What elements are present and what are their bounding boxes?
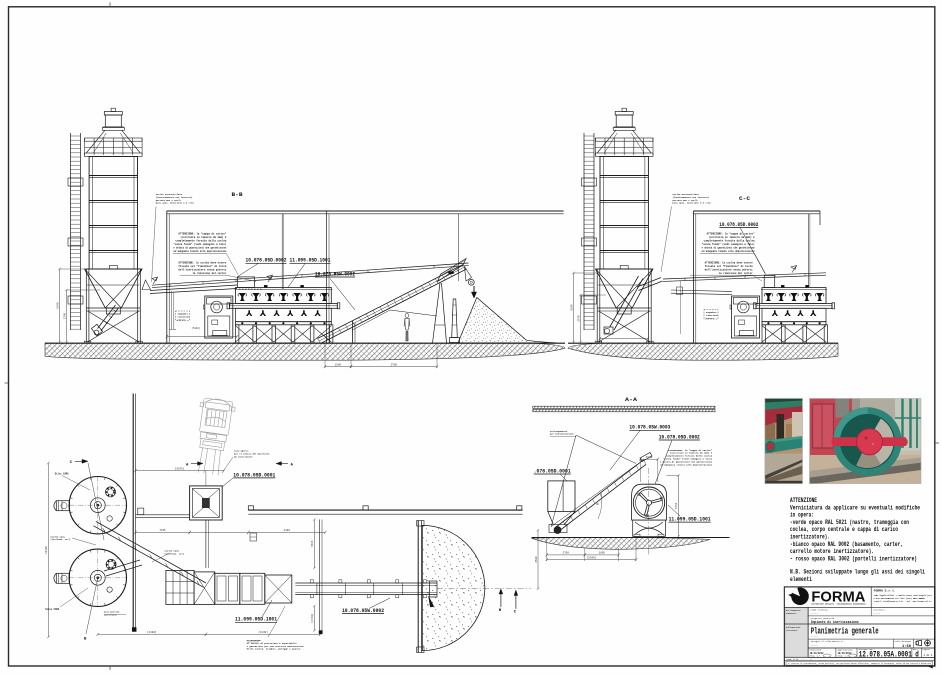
svg-text:[5340]: [5340] (587, 555, 597, 559)
svg-text:della coclea, (rights, pulegge: della coclea, (rights, pulegge e giunto. (247, 648, 302, 651)
svg-text:B-B: B-B (232, 192, 243, 198)
svg-text:1515: 1515 (311, 540, 314, 547)
svg-text:[4448]: [4448] (310, 613, 314, 623)
svg-text:ATTENZIONE: la “cappa di caric: ATTENZIONE: la “cappa di carico” (707, 233, 756, 236)
svg-text:coclea, corpo centrale e cappa: coclea, corpo centrale e cappa di carico (790, 526, 898, 533)
svg-text:5340: 5340 (56, 302, 59, 309)
svg-text:peso spec. materiale 0.8 t/m3: peso spec. materiale 0.8 t/m3 (673, 202, 712, 205)
svg-text:1 di 1: 1 di 1 (924, 653, 933, 657)
svg-text:1512: 1512 (675, 502, 678, 509)
svg-text:-----: ----- (811, 644, 819, 647)
svg-text:-----: ----- (811, 636, 819, 639)
svg-text:completamente fornita dalla co: completamente fornita dalla coclea (704, 240, 756, 243)
svg-text:5700: 5700 (391, 363, 398, 366)
svg-text:C-C: C-C (739, 196, 750, 202)
svg-text:elementi: elementi (790, 576, 812, 583)
svg-text:Verniciatura da applicare su e: Verniciatura da applicare su eventuali m… (790, 504, 920, 511)
svg-text:riservata:: riservata: (786, 629, 798, 632)
svg-text:11.099.05D.1001: 11.099.05D.1001 (290, 258, 331, 264)
svg-text:10.078.05W.0002: 10.078.05W.0002 (342, 608, 384, 614)
svg-text:-----: ----- (873, 612, 881, 615)
svg-text:un’adeguata tenuta alla depolv: un’adeguata tenuta alla depolverazione (702, 250, 756, 253)
svg-text:- rosso opaco RAL 3002 (portel: - rosso opaco RAL 3002 (portelli inertiz… (790, 555, 917, 562)
svg-text:scorrevole: scorrevole (104, 613, 118, 616)
svg-text:Silos CAM2: Silos CAM2 (45, 608, 59, 611)
svg-text:la rimozione del carter: la rimozione del carter (192, 272, 227, 275)
svg-text:N.B. Sezioni sviluppate lungo: N.B. Sezioni sviluppate lungo gli assi d… (790, 569, 925, 576)
svg-text:1500: 1500 (335, 363, 342, 366)
svg-text:2740: 2740 (577, 315, 580, 322)
svg-text:FORMA S.r.l.: FORMA S.r.l. (874, 589, 896, 593)
svg-text:Nome file: --- · ---: Nome file: --- · --- (787, 658, 813, 661)
svg-text:carrello motore inertizzatore): carrello motore inertizzatore). (790, 548, 874, 555)
svg-text:10.078.05W.0002: 10.078.05W.0002 (315, 271, 355, 277)
svg-text:.078.05D.0001: .078.05D.0001 (534, 468, 571, 474)
svg-text:Planimetria generale: Planimetria generale (811, 626, 879, 637)
svg-text:un’adeguata tenuta alla depolv: un’adeguata tenuta alla depolverazione (173, 250, 227, 253)
svg-text:1540: 1540 (646, 456, 653, 459)
svg-text:-----: ----- (811, 612, 819, 615)
svg-text:Località:: Località: (873, 608, 885, 611)
svg-text:10.078.05D.0002: 10.078.05D.0002 (719, 222, 758, 228)
svg-text:Pagina: Pagina (923, 648, 931, 651)
svg-text:-verde opaco RAL 5021 (nastro,: -verde opaco RAL 5021 (nastro, tramoggia… (790, 519, 909, 526)
svg-text:ATTENZIONE: ATTENZIONE (790, 497, 817, 504)
svg-text:carter: carter (178, 318, 187, 321)
svg-text:peso spec. materiale 0.8 t/m3: peso spec. materiale 0.8 t/m3 (156, 202, 195, 205)
svg-text:per movimentazione: per movimentazione (550, 433, 574, 436)
svg-text:5340: 5340 (570, 304, 573, 311)
svg-text:Resp. U.T.: Resp. U.T. (838, 655, 850, 658)
svg-text:E' vietata la riproduzione, an: E' vietata la riproduzione, anche parzia… (788, 662, 932, 665)
svg-text:[2190]: [2190] (147, 630, 157, 634)
svg-text:Silos CAM1: Silos CAM1 (55, 472, 69, 475)
svg-text:12400: 12400 (45, 546, 48, 554)
svg-text:da inertizzare: da inertizzare (234, 455, 253, 458)
svg-text:(inclinaz. 10°): (inclinaz. 10°) (50, 538, 70, 541)
svg-text:[5670]: [5670] (175, 466, 185, 470)
svg-text:carter: carter (706, 317, 715, 320)
svg-text:Disegni al riferimento n°:: Disegni al riferimento n°: (811, 640, 845, 643)
svg-text:10.078.05W.0003: 10.078.05W.0003 (629, 425, 670, 431)
svg-text:un’adeguata tenuta alla depolv: un’adeguata tenuta alla depolverazione (660, 463, 713, 466)
svg-text:in opera:: in opera: (790, 512, 814, 519)
svg-text:e-mail: info@forma-srl.it - ur: e-mail: info@forma-srl.it - url: www.for… (874, 600, 932, 603)
svg-text:Nome cliente:: Nome cliente: (811, 608, 829, 611)
svg-text:12.078.05A.0001 d: 12.078.05A.0001 d (859, 651, 919, 660)
svg-text:A-A: A-A (625, 397, 637, 403)
svg-text:COSTRUTTORI IMPIANTI · ENVIRON: COSTRUTTORI IMPIANTI · ENVIRONMENTAL ENG… (811, 603, 866, 606)
svg-text:1480: 1480 (284, 529, 291, 532)
svg-text:completamente fornita dalla co: completamente fornita dalla coclea (175, 240, 227, 243)
svg-text:[1138]: [1138] (258, 630, 268, 634)
svg-text:commessa:: commessa: (786, 612, 797, 615)
svg-text:Scala disegno:: Scala disegno: (895, 640, 912, 643)
svg-text:Rev.: Rev. (913, 648, 918, 651)
svg-text:2560: 2560 (535, 556, 538, 563)
svg-text:(5440): (5440) (192, 327, 201, 330)
svg-text:11.099.05D.1001: 11.099.05D.1001 (669, 517, 711, 523)
svg-text:10.078.05D.0001: 10.078.05D.0001 (233, 472, 275, 478)
svg-text:10.078.05D.0002: 10.078.05D.0002 (659, 434, 700, 440)
svg-text:(inclinaz. 10°): (inclinaz. 10°) (164, 552, 184, 555)
svg-text:11.099.05D.1001: 11.099.05D.1001 (235, 617, 277, 623)
svg-text:la rimozione del carter: la rimozione del carter (719, 272, 754, 275)
svg-text:ATTENZIONE: la “cappa di caric: ATTENZIONE: la “cappa di carico” (178, 233, 227, 236)
svg-text:1890: 1890 (599, 552, 606, 555)
svg-text:7135: 7135 (159, 529, 166, 532)
svg-text:Progetto generale:: Progetto generale: (811, 617, 836, 620)
svg-text:2700: 2700 (563, 552, 570, 555)
svg-text:Impianto di inertizzazione: Impianto di inertizzazione (811, 620, 859, 625)
svg-text:10.078.05D.0002: 10.078.05D.0002 (246, 258, 287, 264)
svg-text:-bianco opaco RAL 9002 (basame: -bianco opaco RAL 9002 (basamento, carte… (790, 541, 903, 548)
svg-text:2740: 2740 (63, 312, 66, 319)
svg-text:1:50: 1:50 (902, 645, 911, 649)
svg-text:inertizzatore).: inertizzatore). (790, 534, 830, 541)
